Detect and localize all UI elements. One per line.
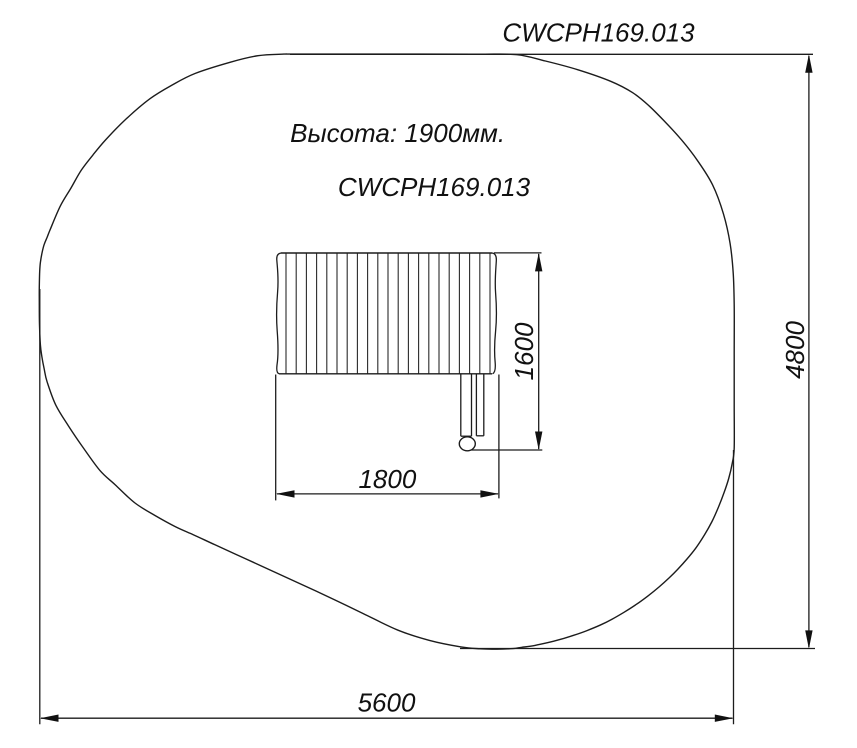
- svg-text:Высота: 1900мм.: Высота: 1900мм.: [290, 118, 505, 148]
- svg-text:CWCPH169.013: CWCPH169.013: [338, 172, 531, 202]
- svg-text:1600: 1600: [509, 322, 539, 380]
- svg-text:CWCPH169.013: CWCPH169.013: [502, 17, 695, 47]
- svg-text:4800: 4800: [780, 321, 810, 379]
- svg-text:5600: 5600: [358, 687, 416, 717]
- svg-text:1800: 1800: [358, 464, 416, 494]
